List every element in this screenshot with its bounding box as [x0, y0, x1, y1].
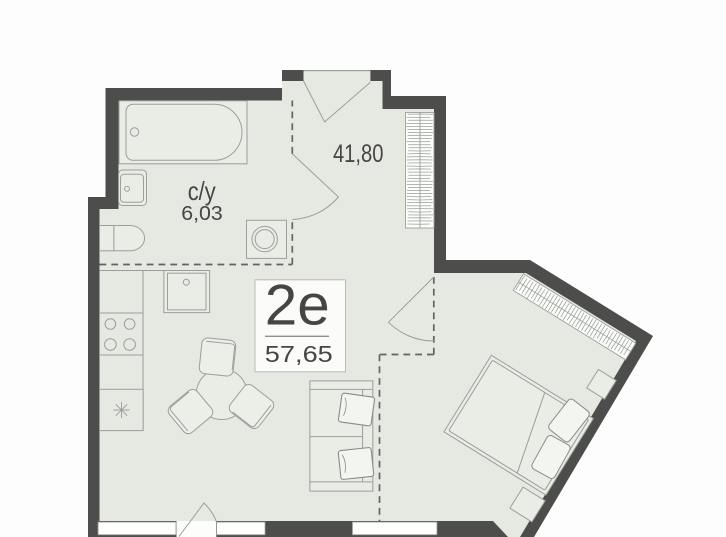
svg-text:41,80: 41,80 [333, 140, 384, 168]
svg-text:57,65: 57,65 [265, 341, 333, 367]
svg-text:6,03: 6,03 [181, 202, 223, 225]
svg-text:2е: 2е [265, 274, 330, 338]
